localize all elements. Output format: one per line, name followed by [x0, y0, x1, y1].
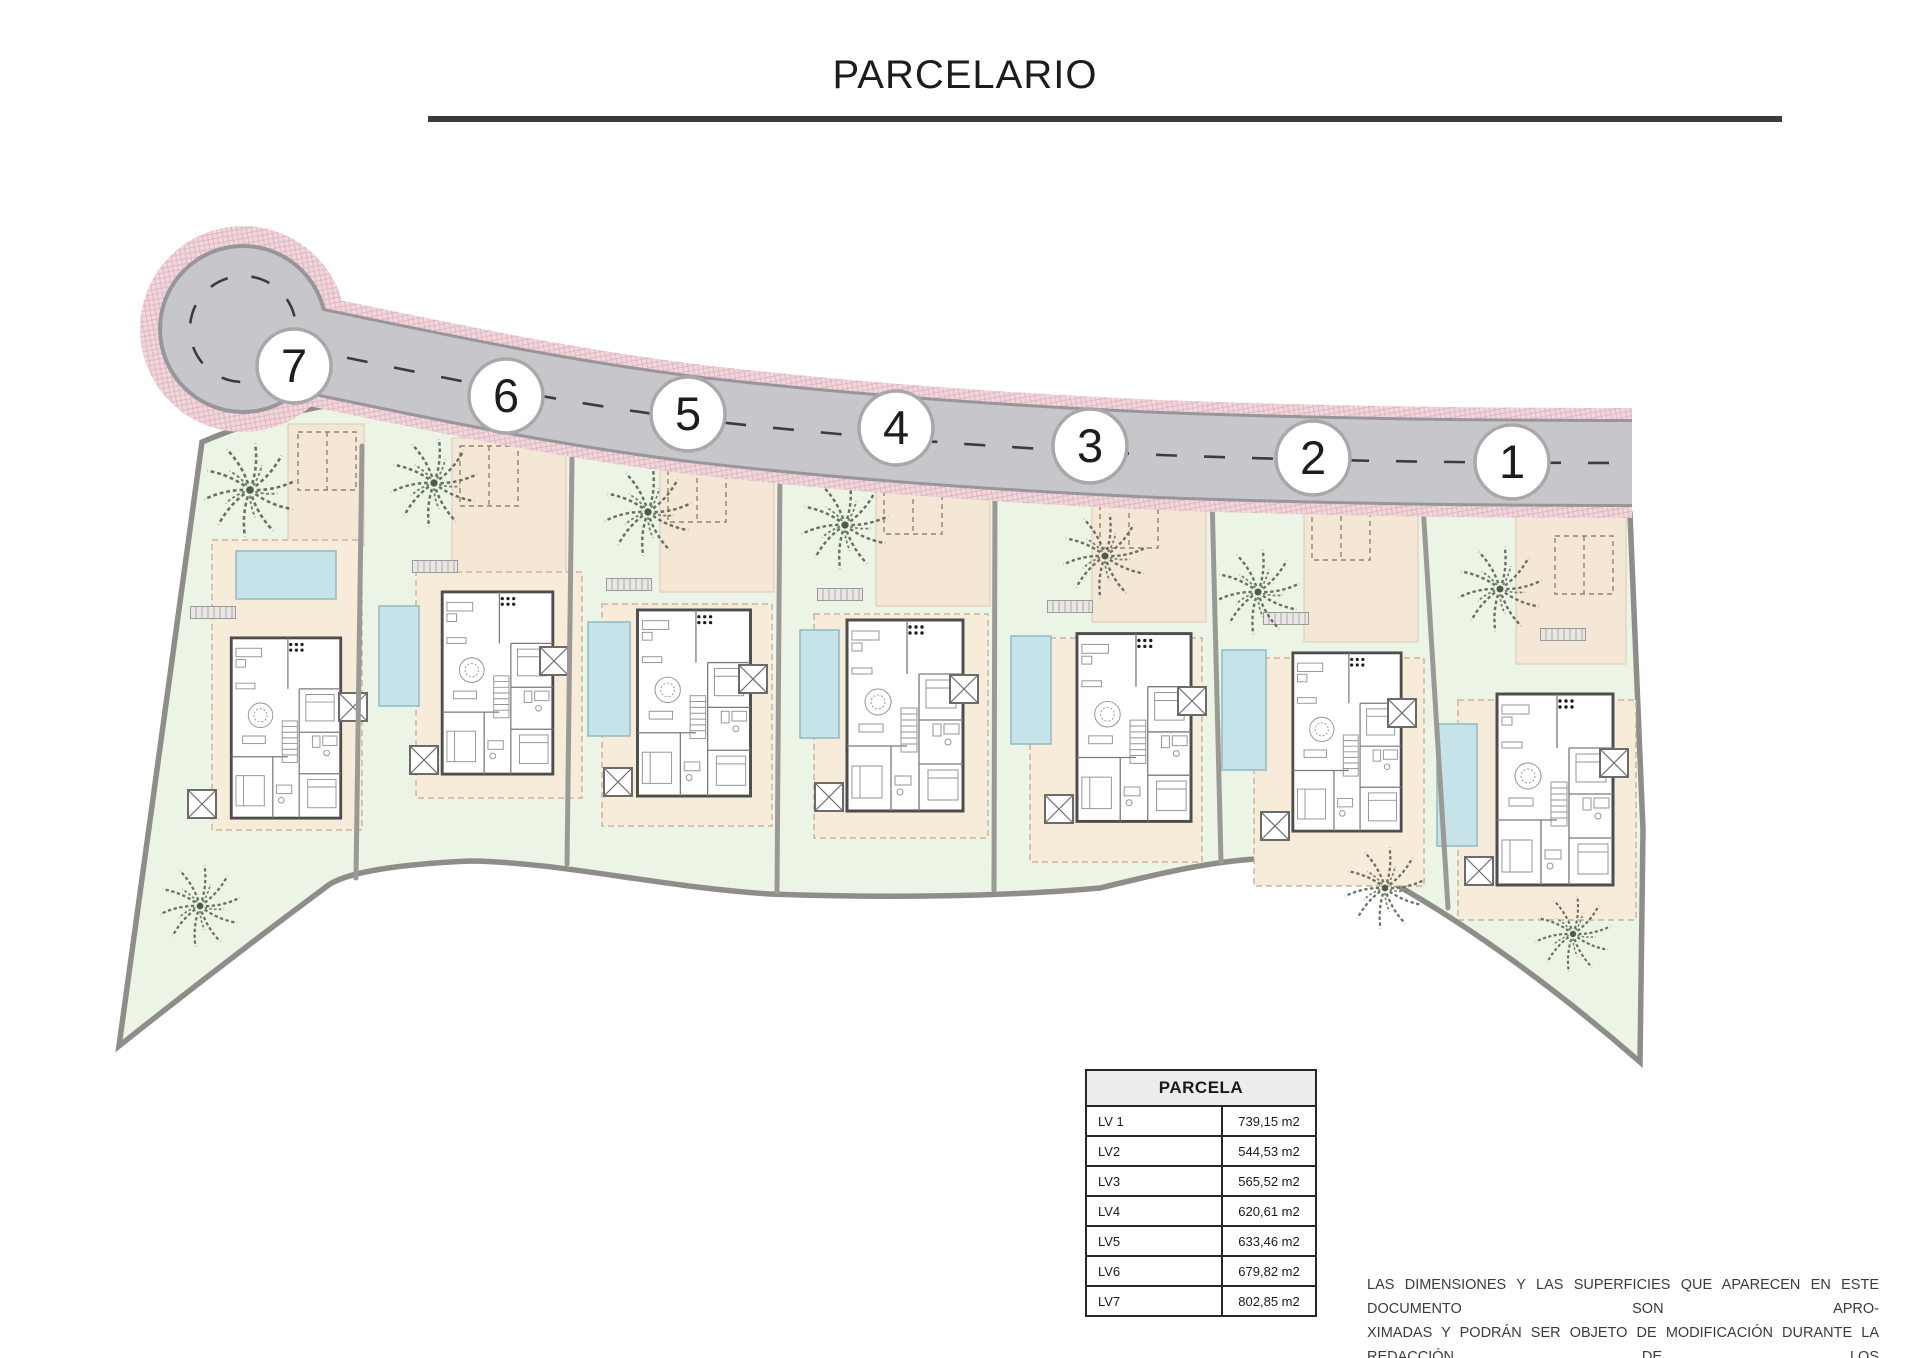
- villa-floorplan: [1077, 634, 1191, 822]
- pool: [236, 551, 336, 599]
- villa-floorplan: [637, 610, 750, 796]
- parcel-area: 620,61 m2: [1222, 1196, 1316, 1226]
- parcela-table: PARCELA LV 1 739,15 m2 LV2 544,53 m2 LV3…: [1085, 1069, 1317, 1317]
- villa-floorplan: [847, 620, 963, 811]
- svg-text:6: 6: [493, 369, 519, 422]
- pergola-column: [540, 647, 568, 675]
- plot-marker-5: 5: [651, 377, 725, 451]
- steps-icon: [1048, 601, 1093, 613]
- parcel-area: 544,53 m2: [1222, 1136, 1316, 1166]
- pool: [1011, 636, 1051, 744]
- svg-text:7: 7: [281, 339, 307, 392]
- steps-icon: [818, 589, 863, 601]
- pool: [1222, 650, 1266, 770]
- table-row: LV5 633,46 m2: [1086, 1226, 1316, 1256]
- villa-floorplan: [1497, 694, 1613, 885]
- table-row: LV2 544,53 m2: [1086, 1136, 1316, 1166]
- pergola-column: [1178, 687, 1206, 715]
- steps-icon: [607, 579, 652, 591]
- table-row: LV3 565,52 m2: [1086, 1166, 1316, 1196]
- parcel-name: LV3: [1086, 1166, 1222, 1196]
- disclaimer: LAS DIMENSIONES Y LAS SUPERFICIES QUE AP…: [1367, 1273, 1879, 1358]
- parcel-name: LV6: [1086, 1256, 1222, 1286]
- pergola-column: [1261, 812, 1289, 840]
- driveway: [452, 438, 566, 578]
- svg-text:1: 1: [1499, 435, 1525, 488]
- steps-icon: [413, 561, 458, 573]
- parcel-area: 739,15 m2: [1222, 1106, 1316, 1136]
- site-plan: 7 6 5 4 3 2 1: [0, 0, 1920, 1358]
- pergola-column: [1600, 749, 1628, 777]
- plot-marker-7: 7: [257, 329, 331, 403]
- parcel-area: 633,46 m2: [1222, 1226, 1316, 1256]
- table-row: LV6 679,82 m2: [1086, 1256, 1316, 1286]
- disclaimer-line: XIMADAS Y PODRÁN SER OBJETO DE MODIFICAC…: [1367, 1321, 1879, 1358]
- pergola-column: [339, 693, 367, 721]
- steps-icon: [1541, 629, 1586, 641]
- villa-floorplan: [1293, 653, 1401, 831]
- pool: [379, 606, 419, 706]
- plan-sheet: PARCELARIO: [0, 0, 1920, 1358]
- plot-divider: [777, 470, 780, 892]
- parcel-area: 802,85 m2: [1222, 1286, 1316, 1316]
- driveway: [288, 424, 364, 546]
- pool: [800, 630, 839, 738]
- table-row: LV7 802,85 m2: [1086, 1286, 1316, 1316]
- pergola-column: [1045, 795, 1073, 823]
- parcel-area: 565,52 m2: [1222, 1166, 1316, 1196]
- plot-marker-4: 4: [859, 391, 933, 465]
- table-row: LV 1 739,15 m2: [1086, 1106, 1316, 1136]
- pergola-column: [950, 675, 978, 703]
- parcel-name: LV 1: [1086, 1106, 1222, 1136]
- pergola-column: [188, 790, 216, 818]
- svg-text:4: 4: [883, 401, 909, 454]
- pergola-column: [604, 768, 632, 796]
- parcel-name: LV2: [1086, 1136, 1222, 1166]
- parcel-name: LV5: [1086, 1226, 1222, 1256]
- driveway: [1516, 512, 1626, 664]
- table-row: LV4 620,61 m2: [1086, 1196, 1316, 1226]
- pool: [588, 622, 630, 736]
- svg-text:3: 3: [1077, 419, 1103, 472]
- plot-marker-1: 1: [1475, 425, 1549, 499]
- disclaimer-line: LAS DIMENSIONES Y LAS SUPERFICIES QUE AP…: [1367, 1273, 1879, 1321]
- svg-text:2: 2: [1300, 431, 1326, 484]
- plot-divider: [994, 482, 995, 890]
- plot-marker-2: 2: [1276, 421, 1350, 495]
- pergola-column: [1465, 857, 1493, 885]
- parcel-name: LV4: [1086, 1196, 1222, 1226]
- steps-icon: [1264, 613, 1309, 625]
- steps-icon: [191, 607, 236, 619]
- plot-marker-3: 3: [1053, 409, 1127, 483]
- parcel-area: 679,82 m2: [1222, 1256, 1316, 1286]
- pergola-column: [410, 746, 438, 774]
- pergola-column: [815, 783, 843, 811]
- plot-marker-6: 6: [469, 359, 543, 433]
- villa-floorplan: [231, 638, 340, 818]
- parcel-name: LV7: [1086, 1286, 1222, 1316]
- villa-floorplan: [442, 592, 553, 774]
- pergola-column: [1388, 699, 1416, 727]
- table-header: PARCELA: [1086, 1070, 1316, 1106]
- svg-text:5: 5: [675, 387, 701, 440]
- pergola-column: [739, 665, 767, 693]
